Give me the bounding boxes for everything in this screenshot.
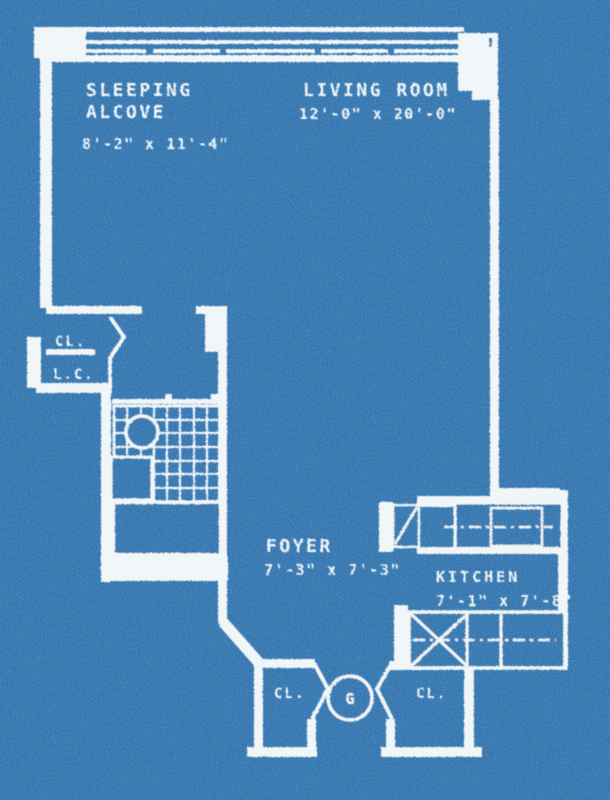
floor-plan-page: SLEEPING ALCOVE 8'-2" x 11'-4" LIVING RO… (0, 0, 610, 800)
floor-plan-drawing: SLEEPING ALCOVE 8'-2" x 11'-4" LIVING RO… (0, 0, 610, 800)
scan-noise-overlay (0, 0, 610, 800)
